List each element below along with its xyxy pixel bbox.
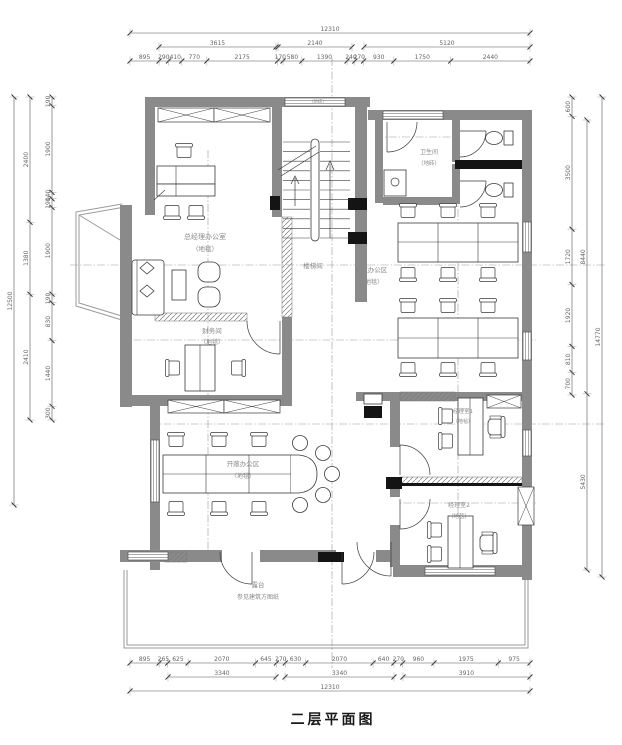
furniture-item [448,516,473,568]
wall-accent [386,477,402,489]
plan-shape [481,363,495,374]
label-open-left-floor: （地毯） [231,472,255,480]
furniture-item [398,223,518,262]
wall-segment [452,120,460,162]
label-gm-floor: （地毯） [192,244,218,253]
plan-shape [212,436,226,447]
furniture-item [364,394,382,404]
label-open-left: 开敞办公区 [227,459,260,468]
plan-shape [480,204,497,208]
chair [164,206,181,220]
dim-label: 2140 [307,40,322,47]
chair [480,204,497,218]
plan-shape [189,206,203,217]
wall-segment [452,164,460,204]
dim-label: 1380 [23,250,30,265]
plan-shape [232,361,243,375]
plan-shape [431,523,442,537]
plan-shape [490,435,501,438]
plan-shape [166,360,170,377]
door [400,445,430,475]
dim-label: 3615 [210,40,225,47]
hatched-wall [282,217,292,317]
furniture-item [157,166,215,184]
wall-segment [145,97,155,215]
plan-shape [439,433,443,450]
dim-label: 1390 [317,54,332,61]
chair [480,363,497,377]
dim-label: 2440 [483,54,498,61]
dim-label: 12310 [320,26,339,33]
dim-label: 170 [275,54,287,61]
toilet [486,132,503,145]
chair [251,433,268,447]
chair [168,433,185,447]
chair [168,502,185,516]
plan-shape [493,533,497,554]
plan-shape [164,216,181,220]
plan-shape [439,408,443,425]
dim-label: 290 [158,54,170,61]
chair [400,204,417,218]
chair [440,299,457,313]
dim-label: 270 [393,656,405,663]
plan-shape [428,522,432,539]
plan-shape [169,436,183,447]
plan-shape [480,299,497,303]
dim-label: 2410 [23,349,30,364]
dim-label: 12500 [7,291,14,310]
terrace-line [79,207,125,317]
label-manager1-floor: （地毯） [453,418,473,425]
plan-shape [482,551,493,554]
dim-label: 3910 [459,670,474,677]
wall-accent [348,198,367,210]
chair [440,204,457,218]
plan-shape [251,433,268,437]
door-opening [247,313,280,322]
plan-shape [169,361,180,375]
dim-label: 700 [565,378,572,390]
terrace-line [79,215,120,240]
dim-label: 5120 [439,40,454,47]
dim-label: 2070 [332,656,347,663]
floorplan-page: 1231036152140512089529041077021751705801… [0,0,622,745]
furniture-item [172,270,186,300]
chair [440,363,457,377]
dim-label: 1720 [565,249,572,264]
dim-label: 895 [139,54,151,61]
wall-accent [400,483,522,486]
label-terrace: 露台 [252,580,265,589]
stool [316,446,331,461]
dim-label: 1440 [45,366,52,381]
dim-label: 3340 [332,670,347,677]
dim-label: 1900 [45,141,52,156]
dim-label: 265 [158,656,170,663]
plan-shape [441,207,455,218]
toilet [486,184,503,197]
plan-shape [481,302,495,313]
window [523,430,531,456]
wall-accent [455,160,522,169]
plan-shape [400,373,417,377]
dim-label: 895 [139,656,151,663]
dim-label: 960 [413,656,425,663]
label-manager1: 经理室1 [453,407,473,415]
plan-shape [252,502,266,513]
plan-shape [490,416,501,419]
furniture-item [198,287,220,307]
furniture-item [504,183,513,197]
plan-shape [480,278,497,282]
dim-label: 640 [378,656,390,663]
plan-shape [480,373,497,377]
window [523,222,531,252]
plan-shape [252,436,266,447]
door [400,499,430,529]
chair [211,502,228,516]
wall-accent [318,552,344,562]
plan-shape [168,433,185,437]
plan-shape [176,144,193,148]
plan-shape [177,147,191,158]
chair [251,502,268,516]
plan-shape [400,299,417,303]
label-gm-office: 总经理办公室 [184,232,226,241]
wall-accent [348,232,367,244]
dim-label: 190 [45,197,52,209]
plan-shape [431,547,442,561]
plan-shape [400,278,417,282]
plan-shape [442,409,453,423]
plan-shape [482,532,493,535]
exec-chair [480,532,497,554]
dim-label: 8440 [580,249,587,264]
dim-label: 580 [287,54,299,61]
dim-label: 3500 [565,165,572,180]
chair [439,408,453,425]
dim-label: 300 [45,407,52,419]
furniture-item [458,398,483,455]
dim-label: 2070 [214,656,229,663]
plan-shape [440,299,457,303]
plan-shape [501,417,505,438]
chair [211,433,228,447]
plan-shape [401,207,415,218]
furniture-item [198,262,220,282]
plan-shape [211,433,228,437]
dim-label: 625 [172,656,184,663]
dim-label: 190 [45,95,52,107]
label-stair-floor: （地砖） [309,98,327,105]
chair [400,299,417,313]
furniture-path [291,455,317,493]
dim-label: 3340 [214,670,229,677]
door [460,181,486,207]
chair [480,299,497,313]
dim-label: 600 [565,101,572,113]
plan-shape [165,206,179,217]
window [128,552,168,560]
plan-shape [441,268,455,279]
window [151,440,159,502]
furniture-item [157,184,215,196]
dimension-chains: 1231036152140512089529041077021751705801… [7,26,607,696]
plan-shape [401,268,415,279]
plan-shape [441,363,455,374]
terrace-line [76,204,122,320]
chair [176,144,193,158]
plan-shape [251,512,268,516]
label-open-right: 开敞办公区 [355,265,388,274]
wall-accent [364,406,382,418]
dim-label: 830 [45,316,52,328]
chair [232,360,246,377]
label-stairwell: 楼梯间 [303,261,323,270]
window [523,332,531,360]
dim-label: 645 [260,656,272,663]
stool [293,498,308,513]
plan-shape [211,512,228,516]
chair [400,363,417,377]
plan-shape [428,546,432,563]
label-manager2-floor: （地毯） [448,512,470,520]
plan-shape [441,302,455,313]
terrace-line [127,570,525,645]
drawing-title: 二层平面图 [291,712,376,728]
plan-shape [481,207,495,218]
terrace-line [124,570,528,648]
plan-shape [440,373,457,377]
dim-label: 270 [354,54,366,61]
chair [440,268,457,282]
dim-label: 5430 [580,474,587,489]
stool [293,436,308,451]
furniture-item [384,170,406,196]
chair [166,360,180,377]
chair [428,546,442,563]
door-opening [390,447,400,477]
plan-shape [401,363,415,374]
dim-label: 630 [290,656,302,663]
dim-label: 14770 [595,327,602,346]
chair [188,206,205,220]
label-manager2: 经理室2 [448,501,470,509]
plan-shape [212,502,226,513]
wall-segment [282,317,292,397]
plan-shape [242,360,246,377]
chair [480,268,497,282]
stool [325,467,340,482]
dim-label: 1750 [415,54,430,61]
dim-label: 190 [45,293,52,305]
exec-chair [488,416,505,438]
dim-label: 770 [189,54,201,61]
plan-shape [440,278,457,282]
plan-shape [442,434,453,448]
dim-label: 12310 [320,684,339,691]
dim-label: 2400 [23,152,30,167]
plan-shape [440,204,457,208]
chair [400,268,417,282]
door [247,321,280,354]
label-finance: 财务间 [202,326,222,335]
chair [439,433,453,450]
stair-mark [278,146,316,170]
chair [428,522,442,539]
wall-accent [270,196,280,210]
label-finance-floor: （地毯） [200,338,224,346]
wall-segment [375,120,383,203]
plan-shape [188,216,205,220]
furniture-item [504,131,513,145]
door-opening [222,550,260,562]
dim-label: 930 [373,54,385,61]
dim-label: 270 [275,656,287,663]
dim-label: 410 [169,54,181,61]
plan-shape [401,302,415,313]
dim-label: 810 [565,353,572,365]
dim-label: 1900 [45,243,52,258]
window [383,111,443,119]
label-toilet-floor: （地砖） [418,159,440,167]
label-open-right-floor: （地毯） [359,278,383,286]
plan-shape [168,512,185,516]
plan-shape [400,204,417,208]
label-toilet: 卫生间 [420,148,438,156]
plan-shape [169,502,183,513]
wall-segment [120,205,132,407]
dim-label: 1920 [565,308,572,323]
door-opening [390,497,400,525]
floorplan-drawing: 1231036152140512089529041077021751705801… [0,0,622,745]
door [460,131,486,157]
stool [316,488,331,503]
dim-label: 2175 [235,54,250,61]
hatched-wall [400,392,455,401]
label-terrace-note: 参见建筑方图纸 [237,593,279,601]
plan-shape [481,268,495,279]
hatched-wall [155,313,247,321]
dim-label: 975 [508,656,520,663]
dim-label: 1975 [458,656,473,663]
